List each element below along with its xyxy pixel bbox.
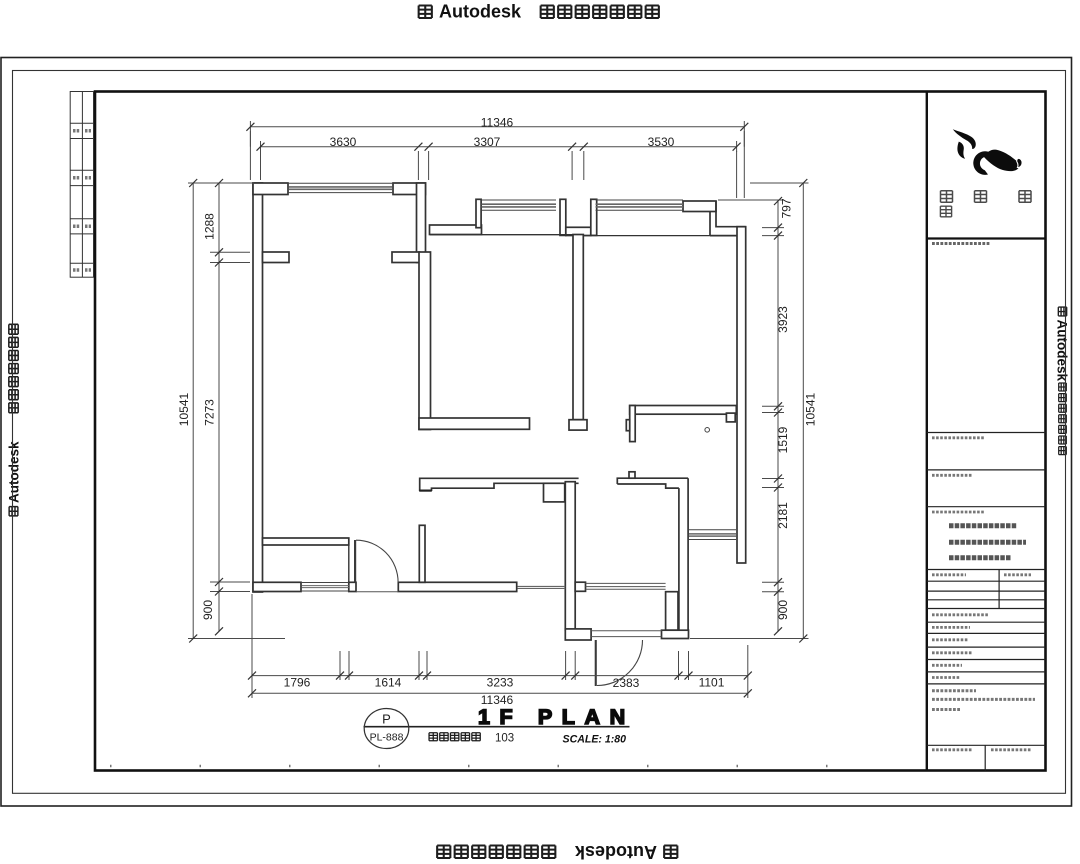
svg-text:3233: 3233 — [487, 676, 514, 690]
svg-text:3530: 3530 — [648, 135, 675, 149]
svg-text:2181: 2181 — [776, 502, 790, 529]
svg-text:Autodesk: Autodesk — [574, 842, 657, 862]
svg-text:2383: 2383 — [613, 676, 640, 690]
svg-text:PL-888: PL-888 — [370, 732, 404, 744]
svg-text:1F PLAN: 1F PLAN — [478, 705, 635, 729]
svg-text:11346: 11346 — [481, 115, 514, 129]
svg-text:P: P — [382, 712, 391, 727]
svg-text:103: 103 — [495, 732, 514, 744]
svg-text:900: 900 — [201, 600, 215, 620]
svg-text:1288: 1288 — [203, 213, 217, 240]
svg-text:SCALE: 1:80: SCALE: 1:80 — [563, 734, 627, 746]
svg-text:3307: 3307 — [474, 135, 501, 149]
svg-text:1519: 1519 — [776, 426, 790, 453]
svg-text:Autodesk: Autodesk — [7, 441, 22, 503]
svg-text:1796: 1796 — [284, 676, 311, 690]
svg-text:7273: 7273 — [203, 399, 217, 426]
svg-text:797: 797 — [780, 198, 794, 218]
svg-text:3630: 3630 — [330, 135, 357, 149]
svg-text:1614: 1614 — [375, 676, 402, 690]
svg-text:3923: 3923 — [776, 306, 790, 333]
svg-text:10541: 10541 — [804, 392, 818, 426]
svg-text:10541: 10541 — [177, 392, 191, 426]
svg-text:Autodesk: Autodesk — [439, 2, 522, 22]
svg-text:1101: 1101 — [699, 676, 725, 690]
svg-text:Autodesk: Autodesk — [1055, 320, 1070, 382]
svg-text:900: 900 — [776, 600, 790, 620]
